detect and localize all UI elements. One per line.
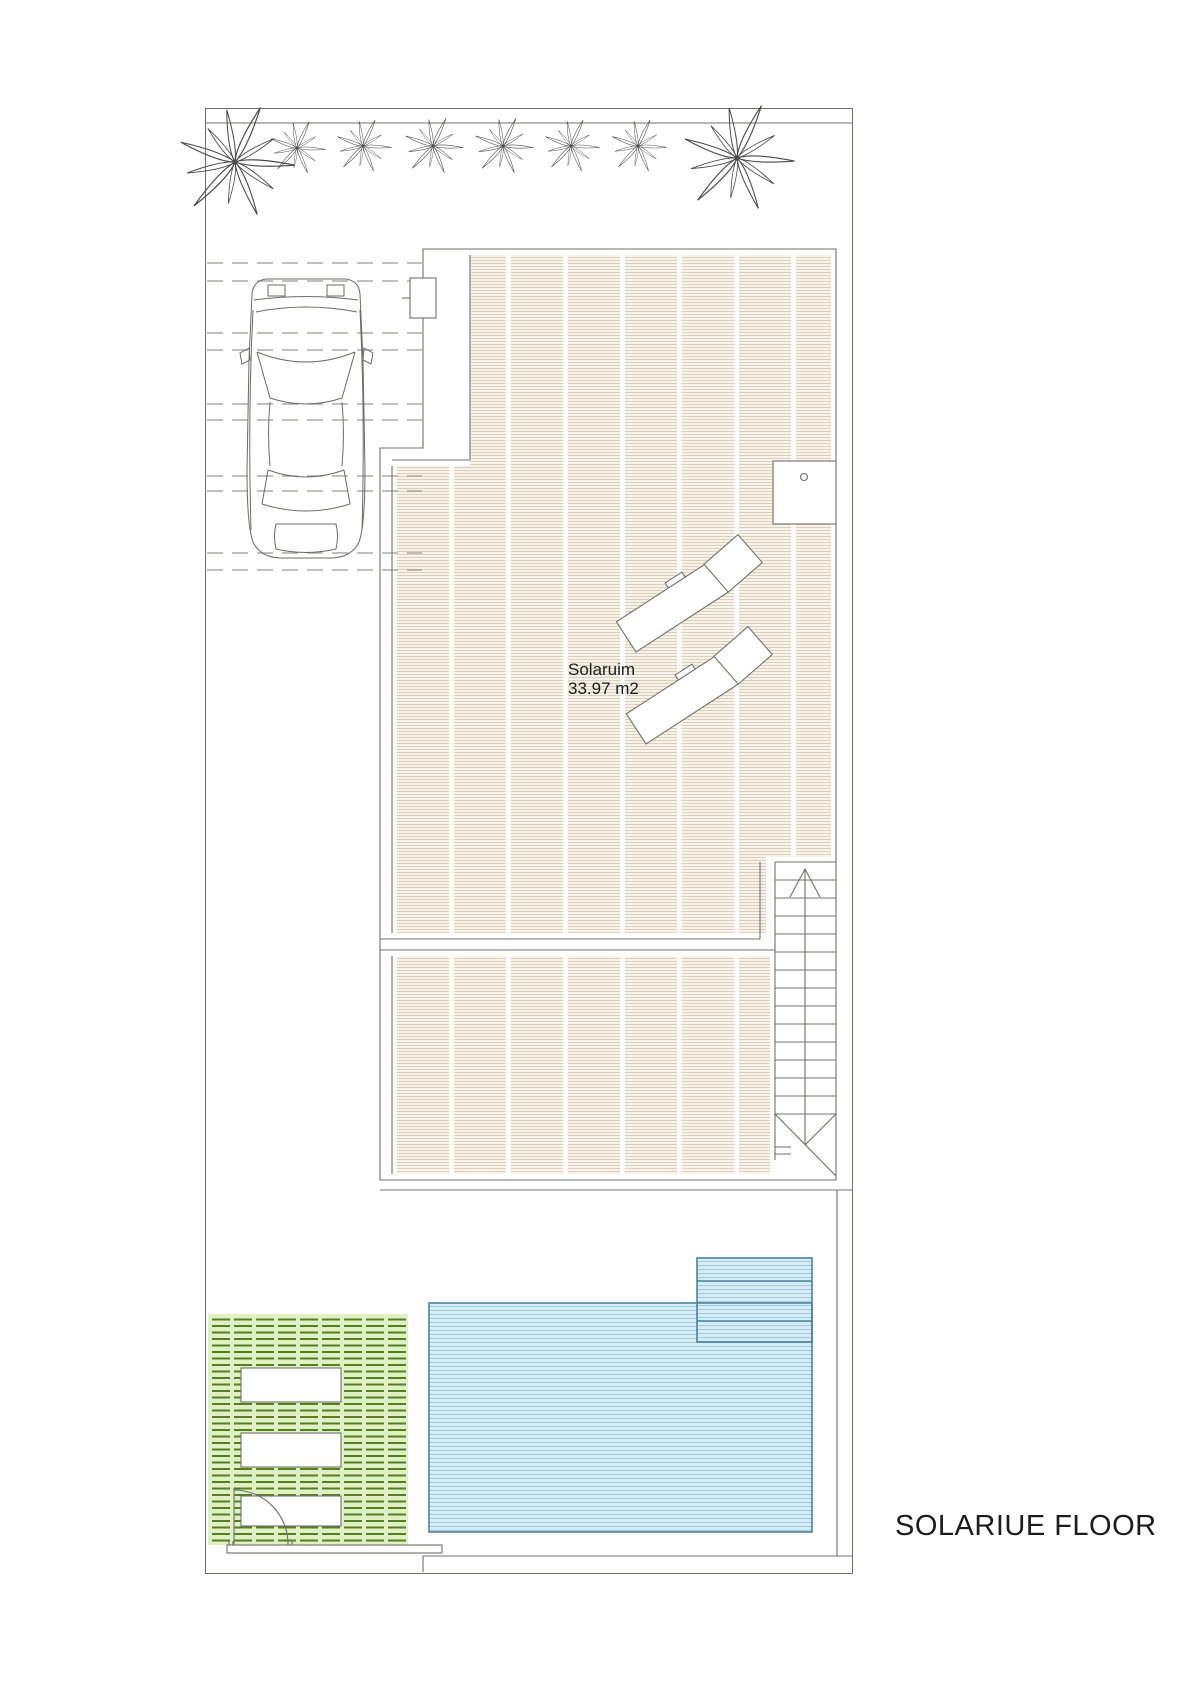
staircase-symbol — [775, 862, 836, 1176]
pool-outline — [429, 1258, 812, 1532]
deck-outline — [380, 249, 852, 1190]
entry-door-symbol — [402, 278, 436, 318]
paving-slabs — [241, 1368, 341, 1526]
palm-tree-icon — [685, 105, 795, 210]
room-name: Solaruim — [568, 660, 639, 679]
palm-tree-icon — [475, 118, 533, 173]
boundary-inner-lines — [205, 123, 852, 1572]
palm-tree-icon — [612, 120, 667, 172]
shower-box-symbol — [773, 461, 836, 524]
palm-tree-icon — [545, 120, 600, 172]
palm-tree-icon — [181, 107, 295, 216]
car-icon — [240, 279, 373, 558]
palm-tree-icon — [337, 120, 392, 172]
room-label: Solaruim 33.97 m2 — [568, 660, 639, 698]
fence-bar — [227, 1541, 442, 1553]
floor-plan-canvas: Solaruim 33.97 m2 SOLARIUE FLOOR — [0, 0, 1204, 1704]
palm-tree-icon — [405, 118, 463, 173]
floor-title: SOLARIUE FLOOR — [895, 1510, 1157, 1543]
palm-tree-icon — [271, 122, 326, 174]
room-area: 33.97 m2 — [568, 679, 639, 698]
plan-linework — [0, 0, 1204, 1704]
palm-tree-row-icon — [181, 105, 795, 216]
